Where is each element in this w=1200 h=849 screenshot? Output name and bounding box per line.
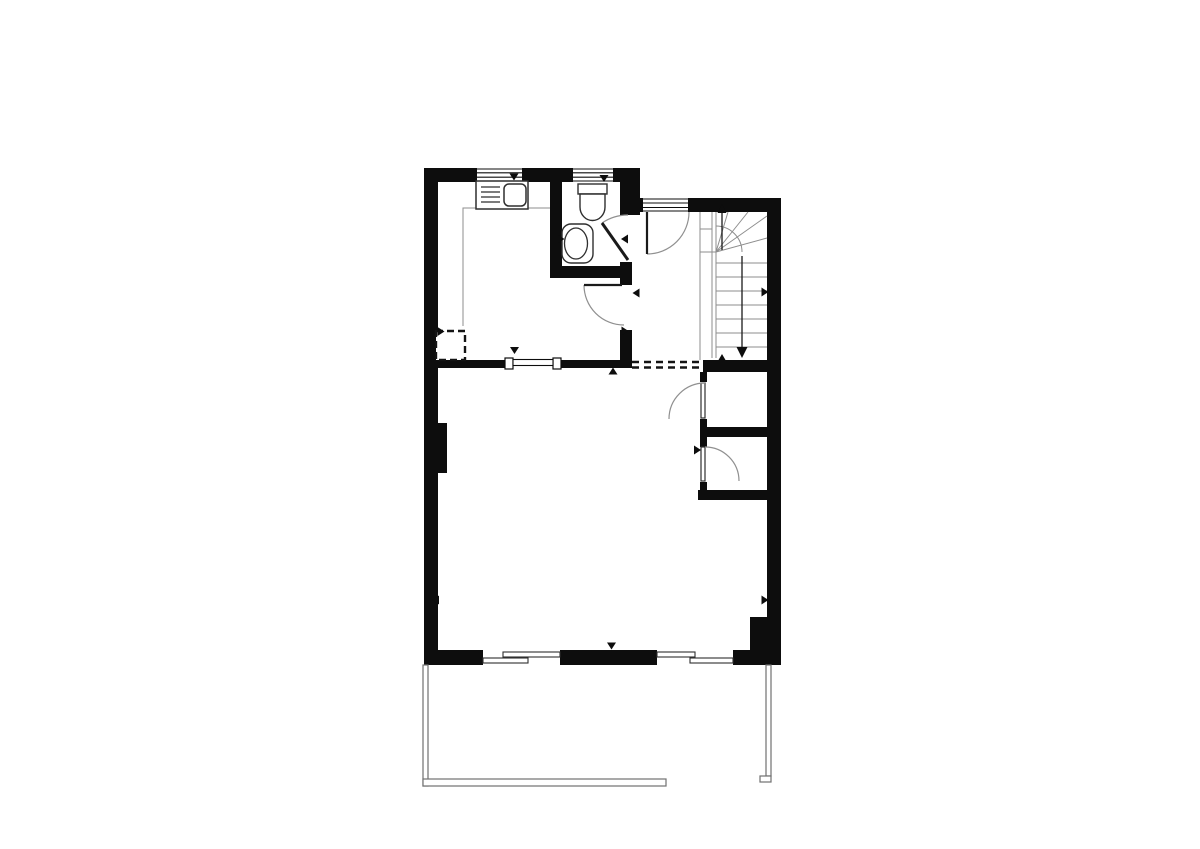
slider-1-panel-b: [483, 658, 528, 663]
kitchen-wall-marker: [609, 368, 618, 375]
floor-plan-image: [0, 0, 1200, 849]
entry-door-arc: [647, 212, 689, 254]
terrace-bottom-rail: [423, 779, 666, 786]
right-wall: [767, 198, 781, 665]
bathroom-left-wall: [550, 182, 562, 278]
slider-2-panel-a: [657, 652, 695, 657]
kitchen-opening-marker: [510, 347, 519, 354]
left-wall: [424, 168, 438, 665]
stairs-base-marker: [719, 354, 726, 360]
stairs-winder-box: [700, 212, 716, 360]
kitchen-zone-line: [463, 208, 550, 326]
kitchen-dashed-appliance: [436, 331, 465, 360]
hall-door-gap: [618, 285, 634, 330]
floor-plan-svg: [0, 0, 1200, 849]
washbasin-counter: [562, 224, 593, 263]
stairs-bottom-wall: [703, 360, 781, 372]
kitchen-opening-cap-left: [505, 358, 513, 369]
closet-bottom-wall: [698, 490, 767, 500]
bathroom-right-wall: [620, 182, 632, 215]
terrace-right-rail-foot: [760, 776, 771, 782]
under-stairs-opening-dashes: [632, 362, 701, 368]
terrace-left-rail: [423, 665, 428, 786]
stairs-stringer: [712, 212, 716, 358]
kitchen-opening-rail: [513, 360, 553, 366]
sink-basin: [504, 184, 526, 206]
toilet-bowl: [580, 194, 605, 220]
corner-block: [750, 617, 781, 665]
closet-mid-wall: [700, 427, 767, 437]
bottom-wall-marker: [607, 643, 616, 650]
lower-closet-door-leaf: [701, 447, 705, 481]
toilet-tank: [578, 184, 607, 194]
slider-2-panel-b: [690, 658, 733, 663]
slider-1-panel-a: [503, 652, 560, 657]
stairs-down-arrowhead: [737, 347, 748, 358]
upper-closet-door-leaf: [701, 383, 705, 418]
lower-closet-door-arc: [705, 447, 739, 481]
entry-door-gap: [643, 198, 688, 212]
terrace-right-rail: [766, 665, 771, 776]
bathroom-bottom-wall: [550, 266, 632, 278]
kitchen-opening-cap-right: [553, 358, 561, 369]
left-wall-pier: [433, 423, 447, 473]
